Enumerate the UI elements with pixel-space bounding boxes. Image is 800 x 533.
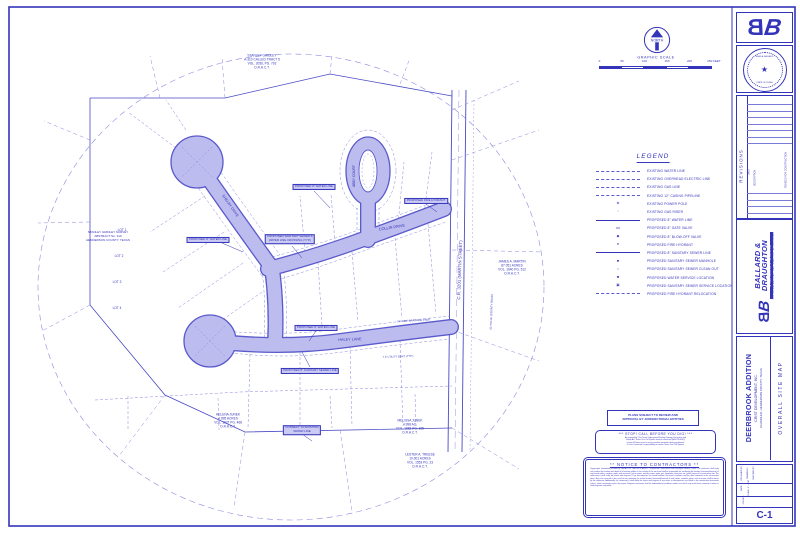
blow-off-valve-icon: ◆: [596, 235, 640, 239]
legend-item: ▫EXISTING GAS RISER: [596, 208, 732, 216]
field-drawn-by: DRAWN BY:: [747, 467, 749, 479]
legend-item: ●PROPOSED FIRE HYDRANT: [596, 241, 732, 249]
engineer-seal-icon: BRAD A. BALLARD ★ STATE OF TEXAS: [743, 48, 787, 92]
parcel-label-martin: JAMES A. MARTIN 87.051 ACRES VOL. 1640 P…: [498, 260, 526, 277]
legend: EXISTING WATER LINE EXISTING OVERHEAD EL…: [596, 167, 732, 298]
legend-item: ⋈PROPOSED 8" GATE VALVE: [596, 224, 732, 232]
revision-row-line: [747, 206, 792, 207]
notice-inner-border: ** NOTICE TO CONTRACTORS ** Topographic …: [585, 459, 724, 516]
survey-boundary-circle: [38, 54, 544, 520]
parcel-label-junek-west: HELENA JUNEK 4.995 ACRES VOL. 1937 PG. 4…: [214, 413, 242, 430]
revisions-title: REVISIONS: [739, 149, 744, 183]
revision-row-line: [747, 124, 792, 125]
legend-item: PROPOSED FIRE HYDRANT RELOCATION: [596, 290, 732, 298]
north-label: NORTH: [651, 38, 664, 42]
casing-pipeline-icon: [596, 195, 640, 196]
notice-to-contractors-body: Topographic information provided by GERA…: [590, 468, 719, 487]
revision-row-line: [747, 117, 792, 118]
bb-logo: BB: [735, 13, 794, 42]
field-checked-by: CHECKED BY:: [753, 466, 755, 480]
graphic-scale-bar: [599, 66, 712, 69]
revision-row-line: [747, 200, 792, 201]
field-divider: [737, 496, 792, 497]
scale-tick: 50: [620, 59, 623, 63]
overhead-electric-line-icon: [596, 179, 640, 180]
call-before-dig-title: *** STOP! CALL BEFORE YOU DIG! ***: [596, 432, 715, 436]
legend-item: EXISTING GAS LINE: [596, 183, 732, 191]
parcel-label-junek-east: MELISSA JUNEK 4.998 AC. VOL. 1883 PG. 32…: [396, 419, 424, 436]
callout-water-line: PROPOSED 8" WATER LINE: [295, 325, 338, 331]
fire-hydrant-icon: ●: [596, 243, 640, 247]
field-designed-by: DESIGNED BY:: [741, 466, 743, 481]
review-notice-text: PLANS SUBJECT TO REVIEW AND APPROVAL BY …: [608, 411, 698, 422]
scale-segment: [644, 66, 667, 69]
sewer-service-icon: ▣: [596, 284, 640, 288]
court-island: [359, 150, 377, 192]
notice-to-contractors-box: ** NOTICE TO CONTRACTORS ** Topographic …: [583, 457, 726, 518]
scale-tick: 250 FEET: [707, 59, 721, 63]
revisions-col-description: DESCRIPTION: [754, 170, 757, 186]
legend-item: ▣PROPOSED SANITARY SEWER SERVICE LOCATIO…: [596, 282, 732, 290]
lot-label: LOT 2: [115, 254, 124, 258]
project-title: DEERBROOK ADDITION: [744, 354, 753, 443]
revision-row-line: [747, 111, 792, 112]
parcel-label-treese: LESTER A. TREESE 10.001 ACRES VOL. 1553 …: [405, 453, 435, 470]
parcel-label-gridley-left: STANLEY GRIDLEY SURVEY ABSTRACT No. 310 …: [86, 231, 130, 243]
sanitary-sewer-line-icon: [596, 252, 640, 253]
legend-item: PROPOSED 8" SANITARY SEWER LINE: [596, 249, 732, 257]
bb-logo-small: BB: [756, 301, 773, 322]
callout-fire-hydrant: PROPOSED FIRE HYDRANT: [404, 198, 448, 204]
callout-crossing: PROPOSED SANITARY SEWER & WATER LINE CRO…: [265, 234, 315, 244]
callout-water-line: PROPOSED 8" WATER LINE: [187, 237, 230, 243]
scale-segment: [667, 66, 690, 69]
street-label-haley: HALEY LANE: [338, 337, 362, 343]
company-block: BB BALLARD & DRAUGHTON A PARTNERSHIP IN …: [737, 220, 792, 333]
lot-label: LOT 1: [118, 228, 127, 232]
legend-item: ■PROPOSED WATER SERVICE LOCATION: [596, 273, 732, 281]
review-notice-box: PLANS SUBJECT TO REVIEW AND APPROVAL BY …: [607, 410, 699, 426]
hydrant-relocation-icon: [596, 293, 640, 294]
gas-riser-icon: ▫: [596, 210, 640, 214]
revision-entry: REVISED FOR CONSTRUCTION: [785, 152, 788, 188]
revision-row-line: [747, 130, 792, 131]
callout-sewer-line: PROPOSED 8" SANITARY SEWER LINE: [281, 368, 339, 374]
legend-item: EXISTING OVERHEAD ELECTRIC LINE: [596, 175, 732, 183]
sheet-title: OVERALL SITE MAP: [771, 336, 791, 460]
street-label-abby: ABBY COURT: [352, 165, 356, 187]
revision-row-line: [747, 143, 792, 144]
company-address: 2616 OLD BULLARD ROAD TYLER, TEXAS 75701…: [773, 232, 775, 299]
star-icon: ★: [761, 65, 768, 74]
power-pole-icon: ⊗: [596, 202, 640, 206]
scale-segment: [599, 66, 622, 69]
callout-connect-existing: CONNECT TO EXISTING WATER LINE: [283, 425, 321, 435]
scale-tick: 100: [642, 59, 647, 63]
parcel-label-gridley-top: STANLEY GRIDLEY A-310 CALLED TRACT 5 VOL…: [244, 54, 280, 71]
revision-row-line: [747, 137, 792, 138]
project-info: DEERBROOK ADDITION CRIST DEVELOPMENT, IN…: [737, 336, 771, 460]
legend-item: ⊗EXISTING POWER POLE: [596, 200, 732, 208]
field-job-number: JOB NO.:: [743, 496, 745, 505]
project-client: CRIST DEVELOPMENT, INC.: [754, 374, 758, 422]
north-arrow: NORTH: [644, 23, 671, 50]
fields-box: C-1: [736, 464, 793, 524]
notice-to-contractors-title: ** NOTICE TO CONTRACTORS **: [590, 462, 719, 467]
callout-water-line: PROPOSED 8" WATER LINE: [293, 184, 336, 190]
field-scale: SCALE: 1" = 100': [748, 480, 750, 496]
scale-segment: [622, 66, 645, 69]
project-block: DEERBROOK ADDITION CRIST DEVELOPMENT, IN…: [737, 336, 792, 460]
scale-tick: 150: [664, 59, 669, 63]
legend-title: LEGEND: [637, 153, 670, 163]
seal-engineer-name: BRAD A. BALLARD: [744, 56, 786, 58]
scale-tick: 0: [599, 59, 601, 63]
logo-box: BB: [736, 12, 793, 43]
legend-item: EXISTING WATER LINE: [596, 167, 732, 175]
field-date: DATE:: [741, 485, 743, 491]
revision-row-line: [747, 193, 792, 194]
legend-item: PROPOSED 8" WATER LINE: [596, 216, 732, 224]
legend-item: ●PROPOSED SANITARY SEWER MANHOLE: [596, 257, 732, 265]
sewer-manhole-icon: ●: [596, 259, 640, 263]
scale-segment: [689, 66, 712, 69]
scale-tick: 200: [687, 59, 692, 63]
sewer-clean-out-icon: ○: [596, 268, 640, 272]
revision-row-line: [747, 213, 792, 214]
project-location: CHANDLER, HENDERSON COUNTY, TEXAS: [759, 368, 763, 428]
sheet-number: C-1: [737, 508, 792, 523]
company-name-line2: DRAUGHTON: [761, 232, 769, 299]
lot-label: LOT 3: [113, 280, 122, 284]
legend-item: EXISTING 12" CASING PIPELINE: [596, 192, 732, 200]
proposed-water-line-icon: [596, 220, 640, 221]
gas-line-icon: [596, 187, 640, 188]
field-divider: [737, 483, 792, 484]
existing-water-line-icon: [596, 171, 640, 172]
lot-label: LOT 4: [113, 306, 122, 310]
plan-sheet: NORTH GRAPHIC SCALE 0 50 100 150 200 250…: [0, 0, 800, 533]
revisions-col-date: DATE: [748, 169, 751, 175]
seal-box: BRAD A. BALLARD ★ STATE OF TEXAS: [736, 45, 793, 93]
seal-state: STATE OF TEXAS: [744, 82, 786, 84]
gate-valve-icon: ⋈: [596, 227, 640, 231]
legend-item: ○PROPOSED SANITARY SEWER CLEAN OUT: [596, 265, 732, 273]
water-service-icon: ■: [596, 276, 640, 280]
legend-item: ◆PROPOSED 8" BLOW-OFF VALVE: [596, 233, 732, 241]
revision-row-line: [747, 104, 792, 105]
call-before-dig-box: *** STOP! CALL BEFORE YOU DIG! *** As re…: [595, 430, 716, 454]
call-before-dig-body: As required by "The Texas Underground Fa…: [596, 437, 715, 447]
